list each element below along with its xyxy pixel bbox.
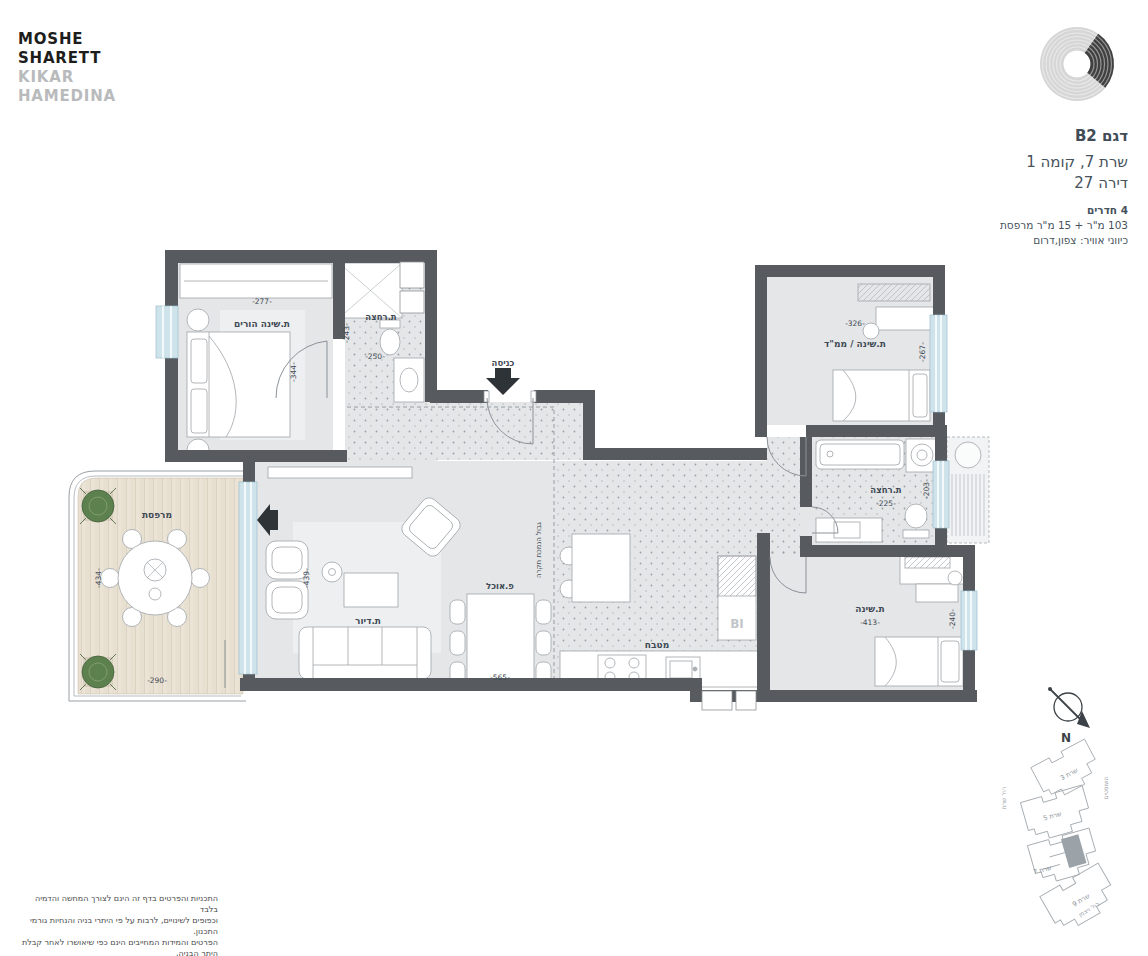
floor-plan-sheet: MOSHE SHARETT KIKAR HAMEDINA דגם B2 שרת … <box>0 0 1148 956</box>
window <box>239 482 257 674</box>
double-bed <box>187 332 290 437</box>
dimension-label: -413- <box>860 618 880 627</box>
compass: N <box>1048 687 1090 745</box>
wardrobe <box>180 264 332 298</box>
dimension-label: -344- <box>289 362 298 382</box>
kitchen-island <box>572 534 630 602</box>
dimension-label: -565- <box>490 673 510 682</box>
dining-chair <box>450 631 465 655</box>
dining-chair <box>450 600 465 624</box>
room-label: ת.רחצה <box>365 312 397 322</box>
room-label: מטבח <box>645 640 669 650</box>
dimension-label: -240- <box>948 609 957 629</box>
dining-chair <box>536 631 551 655</box>
room-label: ת.רחצה <box>870 485 902 495</box>
dimension-label: -290- <box>147 676 167 685</box>
toilet <box>380 320 400 355</box>
plan-svg: כניסה ת.שינה הורים -277- -344- ת.רחצה -2… <box>0 0 1148 956</box>
bathroom-sink <box>816 518 882 542</box>
building-label: שרת 7 <box>1032 864 1053 877</box>
window <box>156 306 178 358</box>
room-label: ת.שינה / ממ"ד <box>824 339 886 349</box>
coffee-table <box>344 573 398 607</box>
donut-logo <box>1040 27 1114 101</box>
dimension-label: -434- <box>94 568 103 588</box>
dimension-label: -243- <box>342 323 351 343</box>
ceiling-boundary-label: גבול הנמכת תקרה <box>535 522 543 578</box>
donut-rings <box>1043 30 1112 99</box>
entrance-label: כניסה <box>492 358 515 368</box>
built-in-fridge-label: BI <box>730 617 744 631</box>
single-bed <box>875 637 963 686</box>
toilet <box>903 504 929 538</box>
desk-chair <box>948 571 962 585</box>
room-label: מרפסת <box>142 510 172 520</box>
street-label: רח' שרת <box>1000 787 1007 809</box>
dimension-label: -225- <box>876 499 896 508</box>
plant <box>80 654 116 690</box>
single-bed <box>833 370 930 421</box>
nightstand <box>187 309 209 331</box>
sofa <box>299 627 431 679</box>
street-label: השופטים <box>1102 777 1109 800</box>
dimension-label: -277- <box>252 297 272 306</box>
room-label: ת.שינה <box>855 604 884 614</box>
plant <box>80 488 116 524</box>
fridge <box>718 556 756 596</box>
sideboard <box>268 467 412 478</box>
building-label: שרת 5 <box>1042 810 1063 823</box>
highlighted-unit <box>1061 834 1087 868</box>
building-outline-highlighted <box>1027 828 1100 886</box>
site-plan: שרת 3 שרת 5 שרת 7 שרת 9 רח' שרת השופטים … <box>1000 739 1120 935</box>
room-label: ת.דיור <box>355 616 381 626</box>
dimension-label: -326- <box>845 319 865 328</box>
boiler <box>955 442 981 468</box>
service-balcony <box>947 437 989 543</box>
dimension-label: -267- <box>918 342 927 362</box>
desk-chair <box>863 323 879 339</box>
room-label: פ.אוכל <box>486 581 514 591</box>
bathtub <box>816 440 904 469</box>
north-label: N <box>1061 731 1071 745</box>
compass-needle <box>1077 711 1090 728</box>
window <box>961 591 977 650</box>
dining-chair <box>536 600 551 624</box>
dimension-label: -250- <box>365 352 385 361</box>
entrance-arrow <box>486 368 520 395</box>
desk <box>916 584 958 602</box>
dimension-label: -439- <box>302 568 311 588</box>
dimension-label: -203- <box>922 479 931 499</box>
shelf <box>858 284 930 301</box>
side-table <box>322 562 342 582</box>
bathroom-sink <box>394 358 424 402</box>
shower <box>339 263 402 318</box>
room-label: ת.שינה הורים <box>234 319 290 329</box>
window <box>930 315 947 412</box>
building-label: שרת 3 <box>1059 766 1080 782</box>
window <box>933 461 949 528</box>
site-labels: שרת 3 שרת 5 שרת 7 שרת 9 רח' שרת השופטים … <box>1000 766 1109 919</box>
desk <box>876 307 934 330</box>
